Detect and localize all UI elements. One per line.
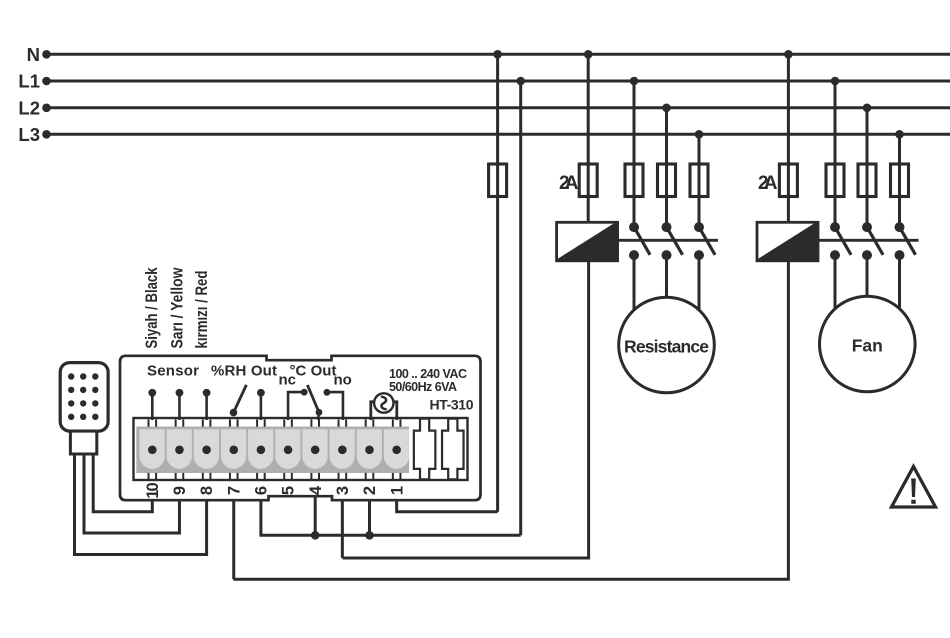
svg-text:1: 1: [388, 486, 406, 495]
svg-text:%RH Out: %RH Out: [211, 362, 277, 379]
svg-text:Siyah / Black: Siyah / Black: [143, 267, 161, 349]
svg-text:°C Out: °C Out: [290, 362, 337, 379]
svg-text:9: 9: [171, 486, 189, 495]
svg-text:Sensor: Sensor: [147, 362, 199, 379]
svg-text:N: N: [27, 44, 40, 65]
svg-text:kırmızı / Red: kırmızı / Red: [193, 271, 211, 349]
svg-text:2A: 2A: [758, 173, 778, 194]
svg-text:6: 6: [253, 486, 271, 495]
svg-text:2: 2: [361, 486, 379, 495]
svg-text:50/60Hz 6VA: 50/60Hz 6VA: [389, 380, 457, 394]
svg-text:8: 8: [198, 486, 216, 495]
svg-text:nc: nc: [279, 372, 297, 389]
svg-text:10: 10: [144, 482, 162, 499]
svg-text:L1: L1: [18, 71, 40, 92]
svg-text:L3: L3: [18, 124, 40, 145]
svg-text:3: 3: [334, 486, 352, 495]
svg-text:5: 5: [280, 486, 298, 495]
svg-text:HT-310: HT-310: [430, 396, 474, 412]
svg-text:L2: L2: [18, 97, 40, 118]
svg-text:Fan: Fan: [852, 335, 883, 355]
svg-text:7: 7: [225, 486, 243, 495]
svg-text:2A: 2A: [559, 173, 579, 194]
svg-text:Sarı / Yellow: Sarı / Yellow: [168, 267, 186, 348]
svg-text:no: no: [334, 372, 352, 389]
svg-text:Resistance: Resistance: [624, 336, 709, 356]
svg-text:4: 4: [307, 485, 325, 495]
